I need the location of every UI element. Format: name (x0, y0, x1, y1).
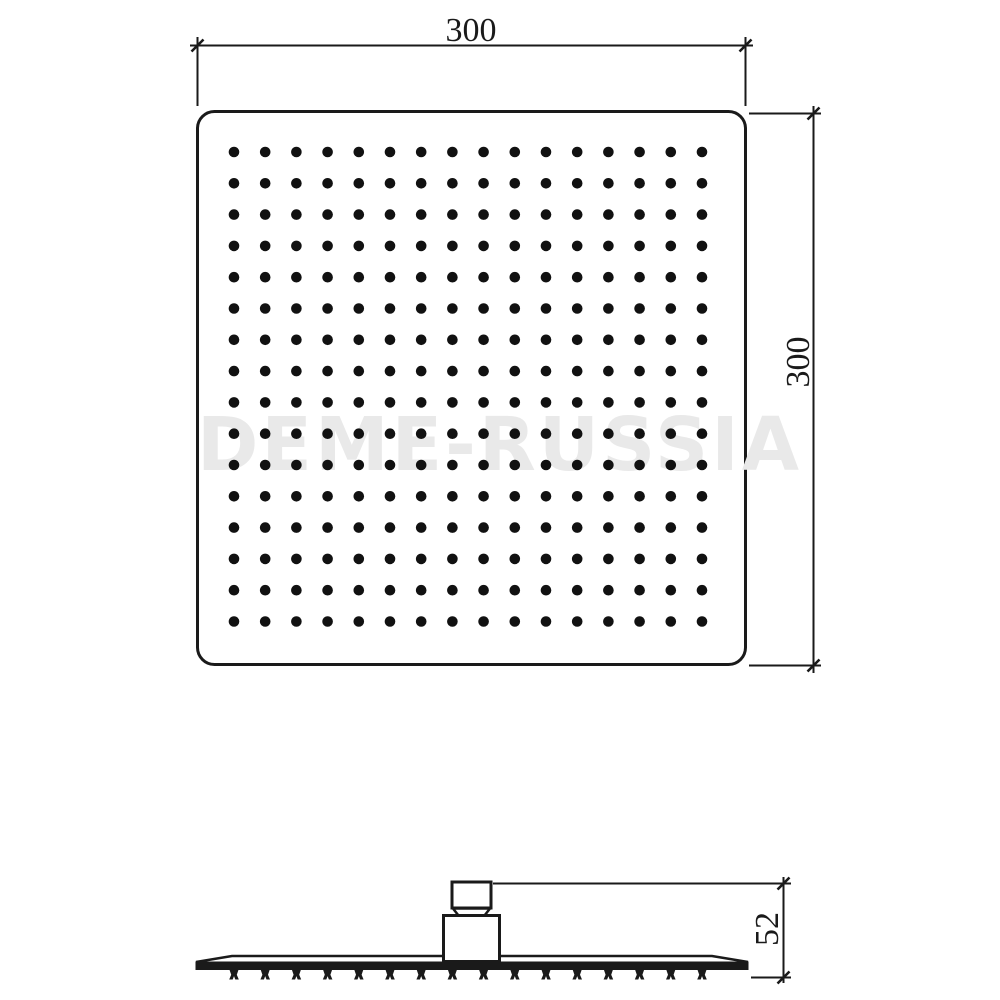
nozzle-tooth (697, 970, 707, 980)
nozzle-dot (354, 397, 365, 408)
nozzle-dot (385, 241, 396, 252)
shower-head-technical-drawing: DEME-RUSSIA 300 300 (0, 0, 1000, 1000)
nozzle-dot (510, 147, 521, 158)
nozzle-dot (322, 428, 333, 439)
nozzle-dot (322, 554, 333, 565)
nozzle-dot (478, 241, 489, 252)
nozzle-dot (229, 397, 240, 408)
nozzle-dot (260, 491, 271, 502)
nozzle-dot (354, 366, 365, 377)
nozzle-dot (603, 522, 614, 533)
nozzle-dot (447, 303, 458, 314)
nozzle-dot (447, 272, 458, 283)
nozzle-dot (291, 585, 302, 596)
nozzle-teeth-row (229, 970, 707, 980)
nozzle-dot (634, 397, 645, 408)
nozzle-dot (354, 491, 365, 502)
nozzle-dot (666, 241, 677, 252)
nozzle-dot (385, 616, 396, 627)
nozzle-dot (541, 272, 552, 283)
nozzle-dot (697, 147, 708, 158)
nozzle-dot (541, 303, 552, 314)
nozzle-dot (634, 178, 645, 189)
watermark-text: DEME-RUSSIA (197, 402, 802, 488)
nozzle-dot (603, 585, 614, 596)
nozzle-dot (229, 554, 240, 565)
nozzle-dot (478, 460, 489, 471)
nozzle-dot (260, 397, 271, 408)
nozzle-dot (260, 147, 271, 158)
nozzle-dot (229, 491, 240, 502)
nozzle-dot (697, 428, 708, 439)
nozzle-dot (478, 616, 489, 627)
nozzle-dot (354, 335, 365, 346)
nozzle-dot (541, 209, 552, 220)
nozzle-tooth (385, 970, 395, 980)
nozzle-dot (541, 241, 552, 252)
nozzle-tooth (292, 970, 302, 980)
nozzle-dot (478, 366, 489, 377)
nozzle-dot (447, 491, 458, 502)
nozzle-dot (541, 616, 552, 627)
nozzle-dot (541, 522, 552, 533)
nozzle-dot (666, 554, 677, 565)
nozzle-dot (385, 178, 396, 189)
side-view (196, 882, 749, 980)
nozzle-dot (291, 491, 302, 502)
nozzle-dot (354, 303, 365, 314)
nozzle-dot (291, 303, 302, 314)
nozzle-dot (634, 522, 645, 533)
nozzle-dot (416, 303, 427, 314)
nozzle-dot (697, 491, 708, 502)
nozzle-dot (354, 616, 365, 627)
nozzle-tooth (354, 970, 364, 980)
nozzle-tooth (229, 970, 239, 980)
nozzle-dot (603, 428, 614, 439)
connector-nut (452, 882, 491, 908)
nozzle-dot (510, 585, 521, 596)
nozzle-dot (322, 147, 333, 158)
nozzle-dot (666, 522, 677, 533)
nozzle-dot (385, 491, 396, 502)
nozzle-dot (260, 209, 271, 220)
nozzle-dot (354, 147, 365, 158)
nozzle-dot (478, 554, 489, 565)
nozzle-dot (229, 585, 240, 596)
nozzle-dot (385, 147, 396, 158)
nozzle-dot (541, 491, 552, 502)
nozzle-dot (447, 178, 458, 189)
nozzle-dot (478, 491, 489, 502)
nozzle-dot (291, 366, 302, 377)
nozzle-dot (322, 460, 333, 471)
nozzle-dot (697, 335, 708, 346)
nozzle-dot (603, 397, 614, 408)
nozzle-dot (447, 397, 458, 408)
nozzle-dot (322, 585, 333, 596)
nozzle-dot (666, 460, 677, 471)
nozzle-dot (603, 209, 614, 220)
nozzle-dot (291, 209, 302, 220)
nozzle-dot (260, 616, 271, 627)
nozzle-dot (229, 147, 240, 158)
nozzle-tooth (416, 970, 426, 980)
nozzle-dot (634, 428, 645, 439)
nozzle-dot (229, 460, 240, 471)
nozzle-dot (447, 554, 458, 565)
nozzle-dot (666, 585, 677, 596)
nozzle-dot (572, 209, 583, 220)
nozzle-tooth (510, 970, 520, 980)
nozzle-dot (666, 147, 677, 158)
nozzle-dot (510, 522, 521, 533)
nozzle-dot (478, 397, 489, 408)
nozzle-dot (416, 209, 427, 220)
nozzle-dot (416, 554, 427, 565)
dimension-right-height (749, 106, 821, 673)
nozzle-dot (322, 366, 333, 377)
nozzle-dot (634, 209, 645, 220)
nozzle-dot (291, 241, 302, 252)
nozzle-dot (541, 428, 552, 439)
nozzle-dot (666, 303, 677, 314)
nozzle-dot (666, 178, 677, 189)
nozzle-dot (572, 178, 583, 189)
nozzle-tooth (448, 970, 458, 980)
nozzle-dot (603, 335, 614, 346)
nozzle-dot (634, 241, 645, 252)
nozzle-dot (291, 616, 302, 627)
nozzle-dot (260, 554, 271, 565)
nozzle-dot (229, 241, 240, 252)
nozzle-dot (322, 241, 333, 252)
nozzle-dot (260, 428, 271, 439)
nozzle-dot (634, 616, 645, 627)
nozzle-dot (603, 272, 614, 283)
nozzle-tooth (479, 970, 489, 980)
nozzle-tooth (260, 970, 270, 980)
nozzle-dot (354, 428, 365, 439)
nozzle-dot (603, 178, 614, 189)
nozzle-dot (634, 366, 645, 377)
nozzle-dot (666, 335, 677, 346)
nozzle-dot (510, 209, 521, 220)
nozzle-dot (478, 522, 489, 533)
nozzle-dot (697, 522, 708, 533)
nozzle-dot (447, 428, 458, 439)
nozzle-dot (572, 554, 583, 565)
nozzle-dot (697, 209, 708, 220)
nozzle-dot (447, 522, 458, 533)
nozzle-dot (541, 397, 552, 408)
nozzle-dot (354, 522, 365, 533)
nozzle-dot (478, 272, 489, 283)
nozzle-dot (322, 178, 333, 189)
nozzle-dot (385, 209, 396, 220)
nozzle-dot (572, 616, 583, 627)
nozzle-dot (229, 303, 240, 314)
nozzle-dot (385, 522, 396, 533)
nozzle-dot (416, 585, 427, 596)
nozzle-dot (385, 554, 396, 565)
nozzle-dot (478, 428, 489, 439)
nozzle-dot (697, 460, 708, 471)
nozzle-dot (510, 178, 521, 189)
nozzle-dot (603, 554, 614, 565)
technical-drawing-page: DEME-RUSSIA 300 300 (0, 0, 1000, 1000)
nozzle-dot (541, 585, 552, 596)
nozzle-dot (260, 272, 271, 283)
nozzle-dot (478, 178, 489, 189)
nozzle-dot (666, 272, 677, 283)
nozzle-dot (510, 460, 521, 471)
nozzle-dot (416, 522, 427, 533)
nozzle-dot (666, 366, 677, 377)
nozzle-dot (447, 585, 458, 596)
nozzle-dot (697, 366, 708, 377)
dimension-label-side-height: 52 (749, 912, 786, 946)
nozzle-dot (510, 366, 521, 377)
nozzle-dot (260, 585, 271, 596)
nozzle-dot (572, 147, 583, 158)
nozzle-dot (666, 209, 677, 220)
nozzle-dot (229, 522, 240, 533)
nozzle-dot (416, 335, 427, 346)
nozzle-dot (447, 616, 458, 627)
dimension-label-top-width: 300 (446, 12, 497, 49)
nozzle-dot (572, 428, 583, 439)
nozzle-dot (447, 366, 458, 377)
nozzle-dot (322, 522, 333, 533)
nozzle-dot (229, 335, 240, 346)
nozzle-dot (385, 272, 396, 283)
nozzle-dot (354, 178, 365, 189)
nozzle-dot (354, 209, 365, 220)
nozzle-dot (634, 460, 645, 471)
nozzle-tooth (572, 970, 582, 980)
nozzle-dot (385, 460, 396, 471)
nozzle-dot (697, 272, 708, 283)
nozzle-dot (634, 147, 645, 158)
nozzle-dot (447, 147, 458, 158)
nozzle-dot (385, 335, 396, 346)
nozzle-dot (260, 303, 271, 314)
connector-body (444, 916, 500, 962)
nozzle-tooth (635, 970, 645, 980)
nozzle-tooth (666, 970, 676, 980)
nozzle-dot (510, 491, 521, 502)
nozzle-dot (416, 397, 427, 408)
nozzle-dot (447, 241, 458, 252)
nozzle-dot (385, 303, 396, 314)
nozzle-dot (666, 428, 677, 439)
nozzle-dot (478, 303, 489, 314)
nozzle-dot (603, 616, 614, 627)
nozzle-dot (416, 460, 427, 471)
nozzle-dot (541, 460, 552, 471)
top-view: DEME-RUSSIA (197, 112, 802, 665)
nozzle-dot (634, 272, 645, 283)
nozzle-dot (478, 335, 489, 346)
nozzle-dot (697, 241, 708, 252)
nozzle-dot (510, 272, 521, 283)
nozzle-dot (229, 272, 240, 283)
nozzle-dot (416, 178, 427, 189)
nozzle-dot (260, 460, 271, 471)
nozzle-dot (260, 178, 271, 189)
nozzle-dot (634, 335, 645, 346)
nozzle-dot (416, 428, 427, 439)
nozzle-dot (697, 303, 708, 314)
nozzle-tooth (323, 970, 333, 980)
nozzle-dot (229, 616, 240, 627)
nozzle-dot (603, 491, 614, 502)
nozzle-dot (385, 366, 396, 377)
dimension-label-right-height: 300 (780, 337, 817, 388)
nozzle-dot (291, 335, 302, 346)
nozzle-dot (634, 303, 645, 314)
nozzle-dot (447, 335, 458, 346)
shower-face-outline (198, 112, 746, 665)
nozzle-dot (291, 178, 302, 189)
nozzle-dot (385, 585, 396, 596)
nozzle-dot (572, 303, 583, 314)
nozzle-dot (478, 585, 489, 596)
nozzle-dot (634, 491, 645, 502)
nozzle-dot (322, 397, 333, 408)
nozzle-dot (697, 616, 708, 627)
nozzle-dot (354, 460, 365, 471)
nozzle-dot (572, 585, 583, 596)
nozzle-dot (603, 303, 614, 314)
nozzle-dot (572, 366, 583, 377)
nozzle-dot (666, 397, 677, 408)
nozzle-dot (572, 272, 583, 283)
nozzle-dot (572, 335, 583, 346)
nozzle-dot (354, 272, 365, 283)
nozzle-dot (697, 397, 708, 408)
nozzle-dot (322, 491, 333, 502)
nozzle-dot (572, 241, 583, 252)
nozzle-dot (666, 491, 677, 502)
nozzle-dot (510, 616, 521, 627)
nozzle-dot (416, 272, 427, 283)
nozzle-dot (260, 335, 271, 346)
nozzle-dot (416, 147, 427, 158)
nozzle-dot (603, 460, 614, 471)
nozzle-dot (634, 585, 645, 596)
nozzle-dot (447, 460, 458, 471)
nozzle-dot (354, 241, 365, 252)
nozzle-dot (291, 554, 302, 565)
nozzle-dot (322, 272, 333, 283)
nozzle-dot (541, 178, 552, 189)
nozzle-dot (572, 522, 583, 533)
nozzle-dot (385, 397, 396, 408)
nozzle-dot (478, 209, 489, 220)
nozzle-dot (260, 522, 271, 533)
nozzle-tooth (604, 970, 614, 980)
nozzle-dot (291, 460, 302, 471)
nozzle-dot (229, 178, 240, 189)
nozzle-dot (510, 554, 521, 565)
nozzle-dot (697, 178, 708, 189)
nozzle-dot (291, 428, 302, 439)
nozzle-dot (322, 616, 333, 627)
nozzle-dot (541, 147, 552, 158)
nozzle-dot (416, 366, 427, 377)
nozzle-dot (260, 366, 271, 377)
nozzle-dot (603, 241, 614, 252)
nozzle-dot (416, 491, 427, 502)
nozzle-dot (416, 616, 427, 627)
nozzle-dot (541, 554, 552, 565)
nozzle-dot (260, 241, 271, 252)
nozzle-dot (510, 303, 521, 314)
nozzle-dot (385, 428, 396, 439)
nozzle-dot (229, 428, 240, 439)
nozzle-dot (291, 272, 302, 283)
nozzle-dot (697, 585, 708, 596)
nozzle-dot (510, 241, 521, 252)
nozzle-dot (510, 428, 521, 439)
nozzle-dot (572, 460, 583, 471)
nozzle-dot (291, 397, 302, 408)
nozzle-dot (229, 366, 240, 377)
nozzle-dot (541, 335, 552, 346)
nozzle-dot (603, 366, 614, 377)
nozzle-dot (322, 209, 333, 220)
nozzle-tooth (541, 970, 551, 980)
nozzle-dot (634, 554, 645, 565)
nozzle-dot (697, 554, 708, 565)
nozzle-dot (354, 554, 365, 565)
nozzle-dot (416, 241, 427, 252)
nozzle-dot (510, 397, 521, 408)
nozzle-dot (291, 522, 302, 533)
nozzle-dot (510, 335, 521, 346)
nozzle-dot (572, 491, 583, 502)
nozzle-dot (572, 397, 583, 408)
nozzle-dot (447, 209, 458, 220)
nozzle-dot (666, 616, 677, 627)
nozzle-dot (229, 209, 240, 220)
nozzle-dot (603, 147, 614, 158)
nozzle-dot (322, 335, 333, 346)
nozzle-dot (478, 147, 489, 158)
nozzle-dot (291, 147, 302, 158)
nozzle-dot (322, 303, 333, 314)
nozzle-dot (541, 366, 552, 377)
nozzle-dot (354, 585, 365, 596)
